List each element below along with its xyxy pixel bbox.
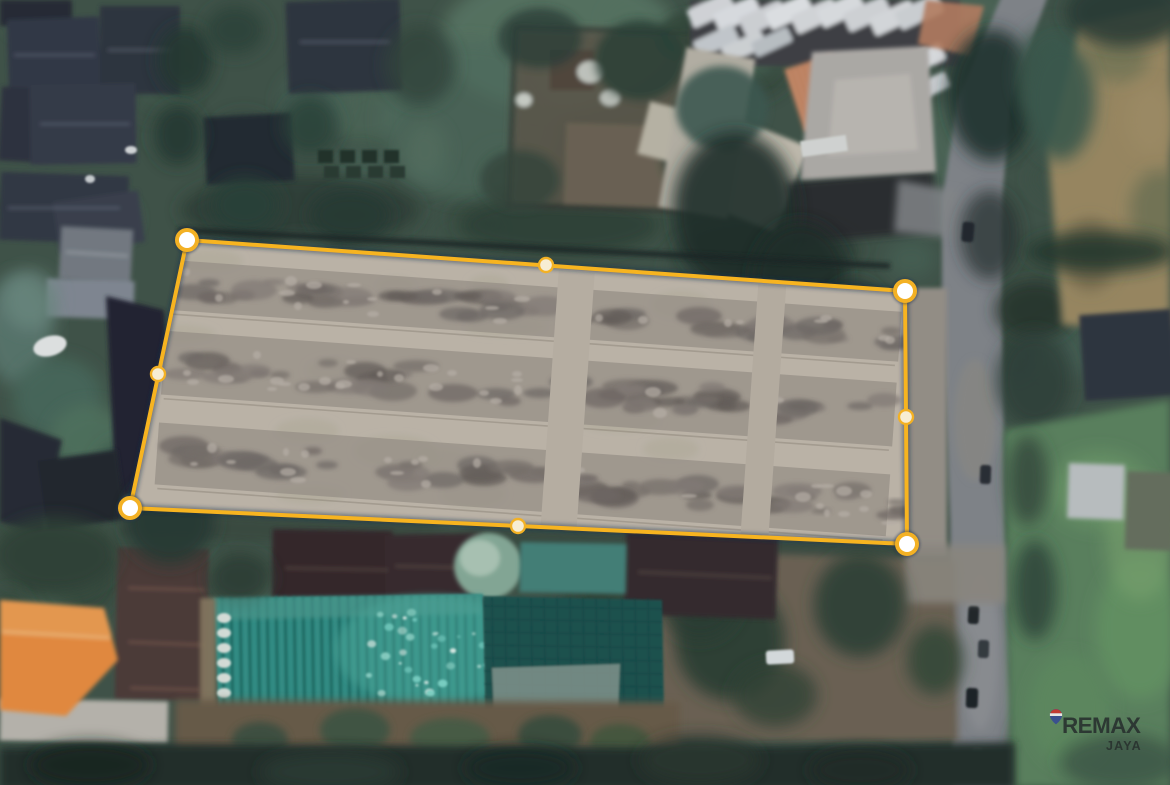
svg-text:REMAX: REMAX bbox=[1062, 713, 1141, 738]
svg-text:JAYA: JAYA bbox=[1106, 739, 1142, 753]
